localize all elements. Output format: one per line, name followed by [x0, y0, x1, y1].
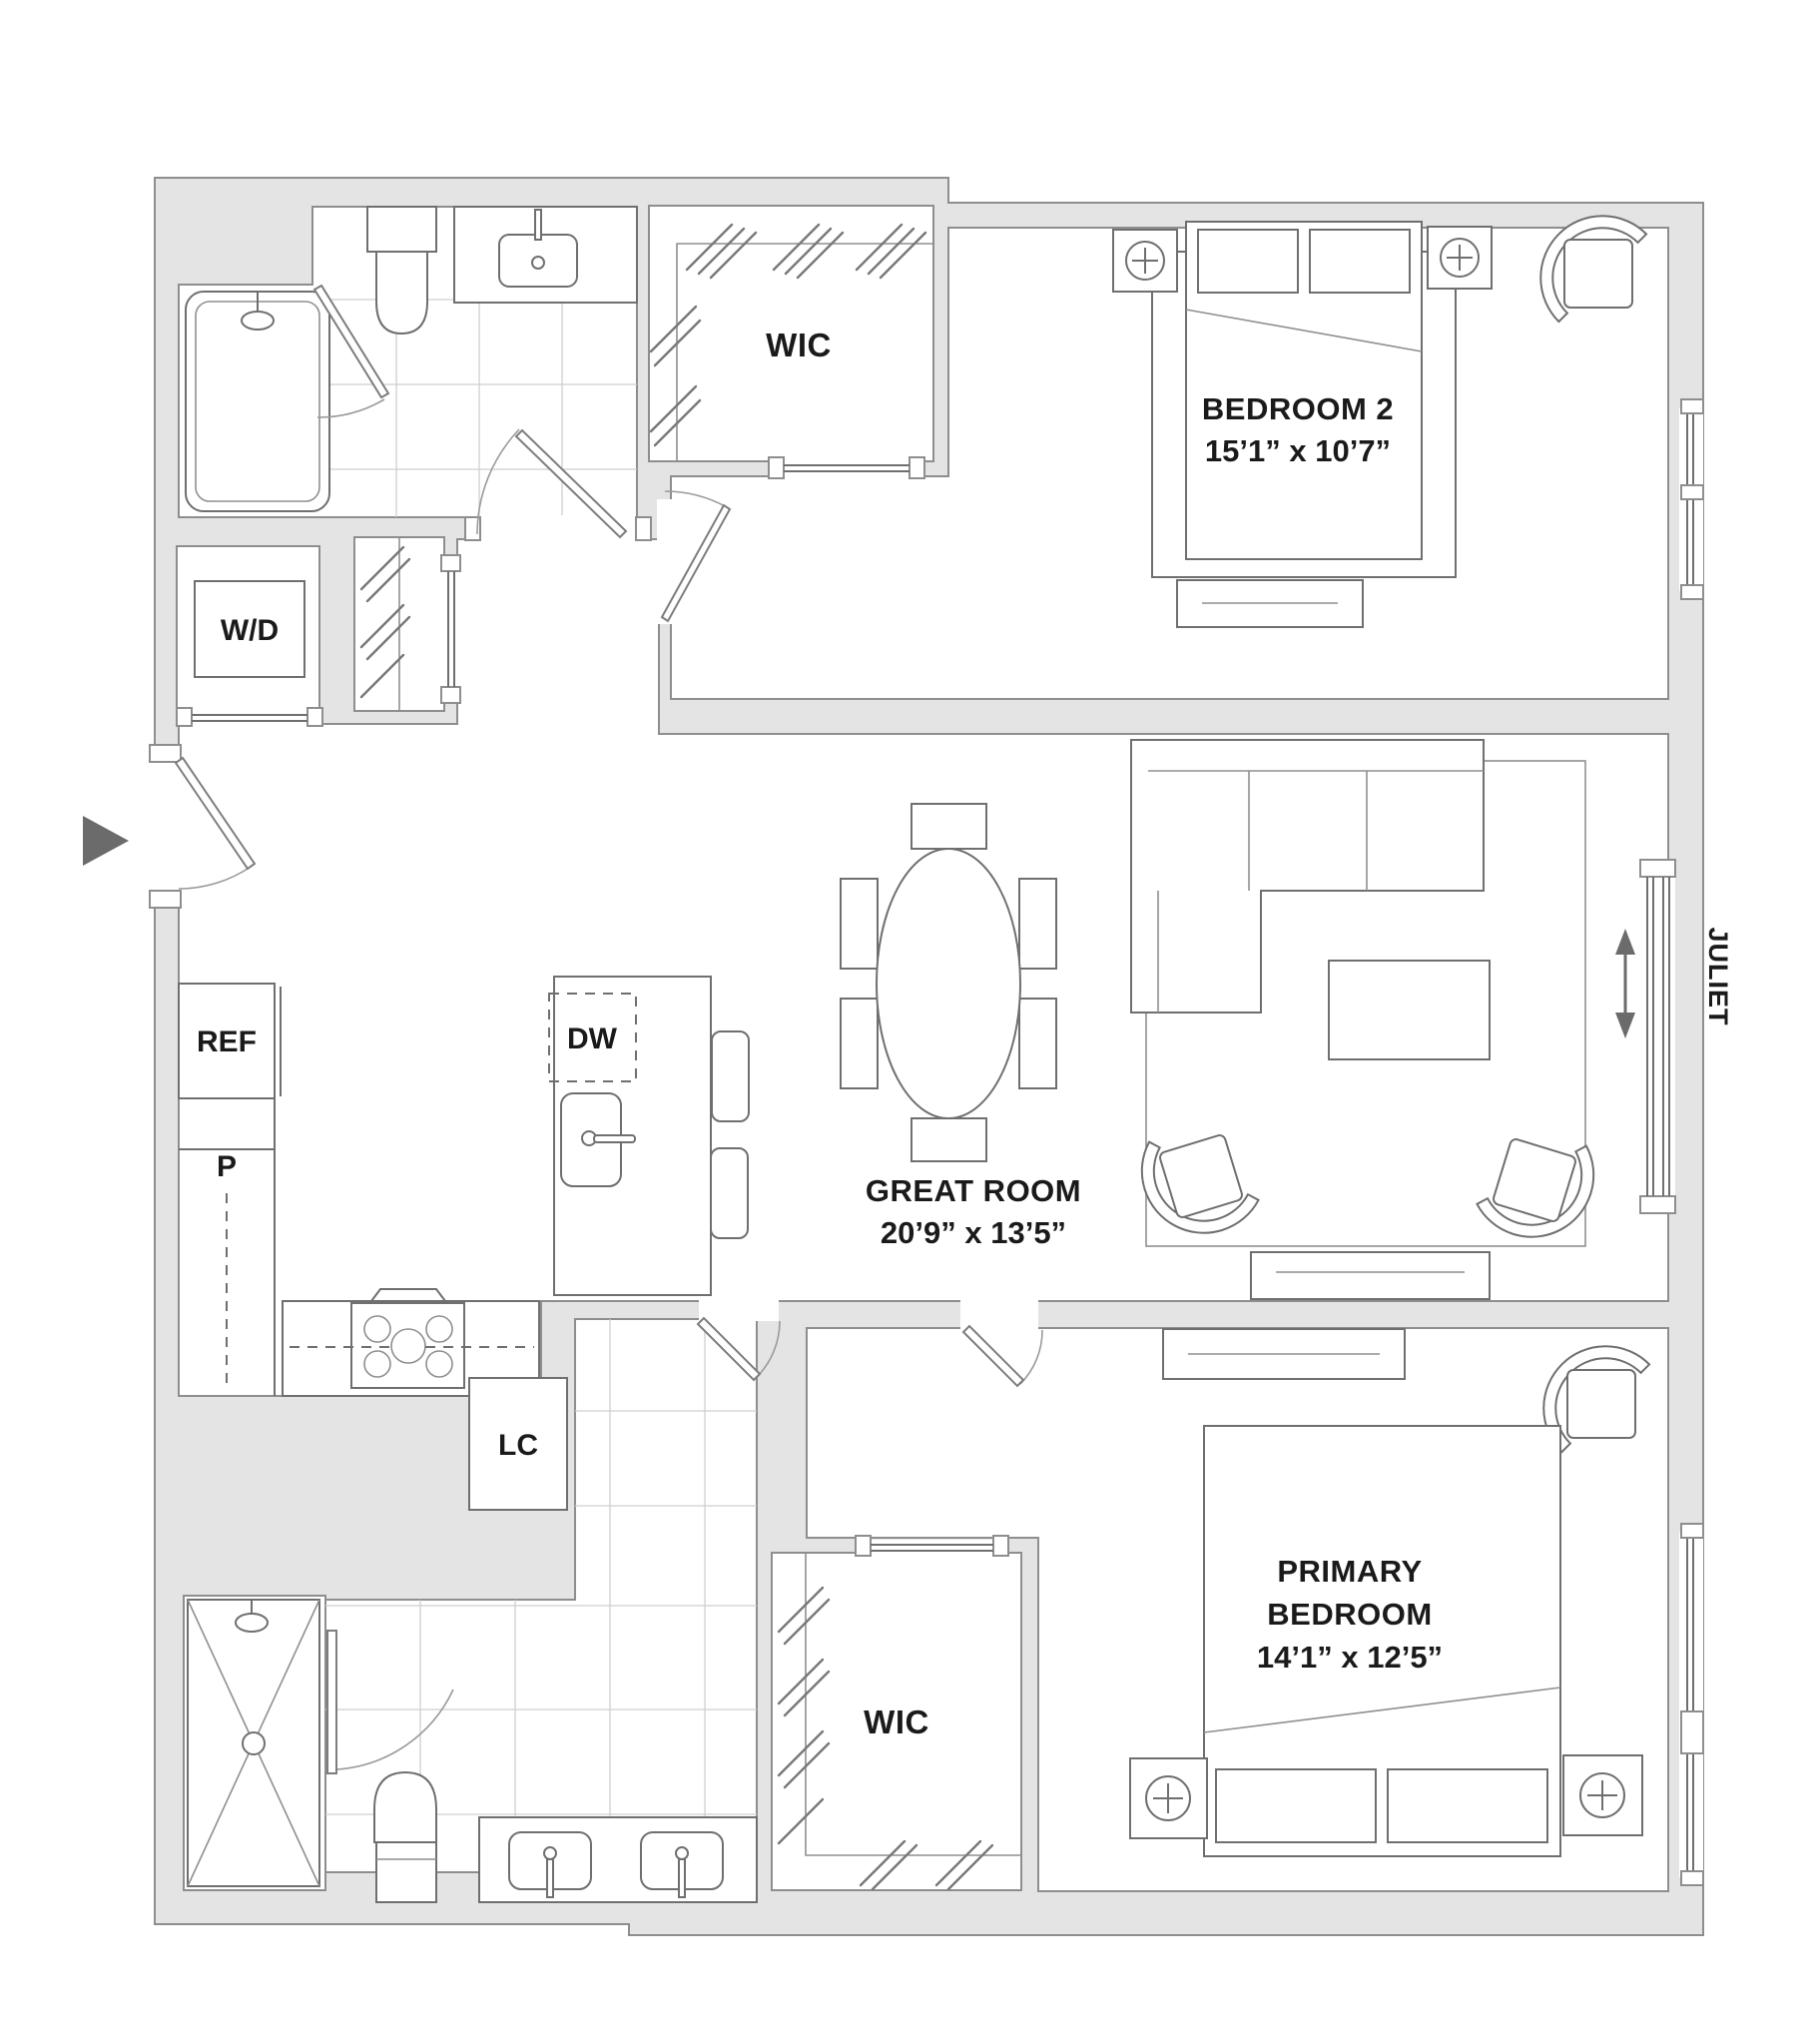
bath1-jamb-right: [636, 517, 651, 540]
wic-bottom-jamb-left: [856, 1536, 871, 1556]
lc-label: LC: [498, 1429, 538, 1462]
primary-bedroom-windows: [1679, 1524, 1703, 1885]
entry-opening: [153, 762, 181, 891]
island-stool-1: [712, 1031, 749, 1121]
juliet-label: JULIET: [1703, 927, 1733, 1025]
toilet-bath2: [374, 1772, 436, 1902]
wd-jamb-left: [177, 708, 192, 726]
suite-door-opening: [699, 1299, 779, 1321]
bedroom2-window: [1679, 399, 1703, 599]
wd-jamb-right: [307, 708, 322, 726]
dw-label: DW: [567, 1022, 618, 1055]
great-room-dims: 20’9” x 13’5”: [881, 1215, 1066, 1250]
mirror-closet-door-opening: [443, 571, 459, 687]
double-vanity: [479, 1817, 757, 1902]
bedroom2-name: BEDROOM 2: [1202, 391, 1394, 426]
wd-label: W/D: [221, 614, 279, 647]
media-console: [1251, 1252, 1490, 1299]
wic-top-label: WIC: [766, 327, 832, 363]
wic-top-jamb-right: [910, 457, 924, 478]
floor-plan: WIC BEDROOM 2 15’1” x 10’7” W/D REF P DW…: [0, 0, 1820, 2040]
primary-bedroom-name2: BEDROOM: [1267, 1597, 1432, 1632]
bedroom2-nightstand-left: [1113, 230, 1177, 292]
bedroom2-dims: 15’1” x 10’7”: [1205, 433, 1391, 468]
primary-door-opening: [960, 1299, 1038, 1330]
primary-nightstand-right: [1563, 1755, 1642, 1835]
ref-label: REF: [197, 1025, 257, 1058]
juliet-door: [1640, 860, 1675, 1213]
bedroom2-nightstand-right: [1428, 227, 1492, 289]
toilet-bath1: [367, 207, 436, 334]
entry-jamb-bottom: [150, 891, 181, 908]
coffee-table: [1329, 961, 1490, 1059]
shower: [188, 1600, 319, 1886]
great-room-name: GREAT ROOM: [866, 1173, 1081, 1208]
wic-bottom-label: WIC: [864, 1703, 929, 1740]
mirror-closet-jamb-bottom: [441, 687, 460, 703]
entry-jamb-top: [150, 745, 181, 762]
wd-door-opening: [192, 710, 307, 726]
wic-bottom-door-opening: [871, 1540, 993, 1556]
primary-nightstand-left: [1130, 1758, 1207, 1838]
primary-bedroom-dims: 14’1” x 12’5”: [1257, 1640, 1443, 1675]
bathtub: [186, 292, 329, 511]
island-stool-2: [711, 1148, 748, 1238]
wic-top-jamb-left: [769, 457, 784, 478]
vanity-bath1: [454, 207, 637, 303]
entry-arrow: [83, 816, 129, 866]
bedroom2-dresser: [1177, 580, 1363, 627]
primary-dresser: [1163, 1329, 1405, 1379]
wic-top-door-opening: [784, 459, 910, 478]
pantry-label: P: [217, 1150, 237, 1183]
wic-bottom-jamb-right: [993, 1536, 1008, 1556]
mirror-closet-jamb-top: [441, 555, 460, 571]
primary-bedroom-name1: PRIMARY: [1277, 1554, 1422, 1589]
